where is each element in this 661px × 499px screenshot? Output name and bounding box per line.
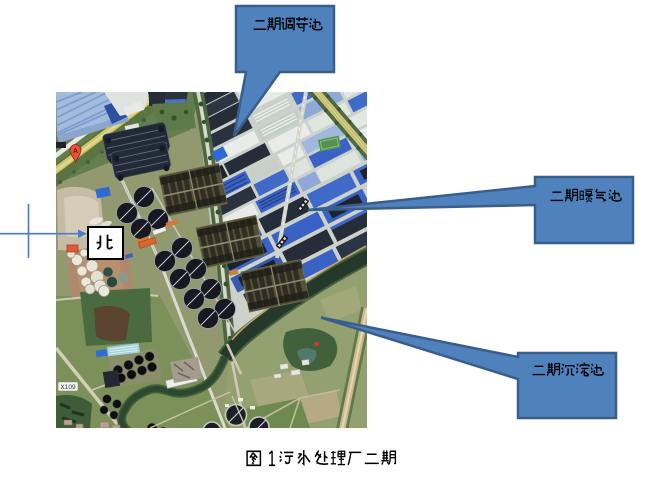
svg-text:X109: X109 [60,384,76,391]
svg-text:A: A [73,148,78,155]
